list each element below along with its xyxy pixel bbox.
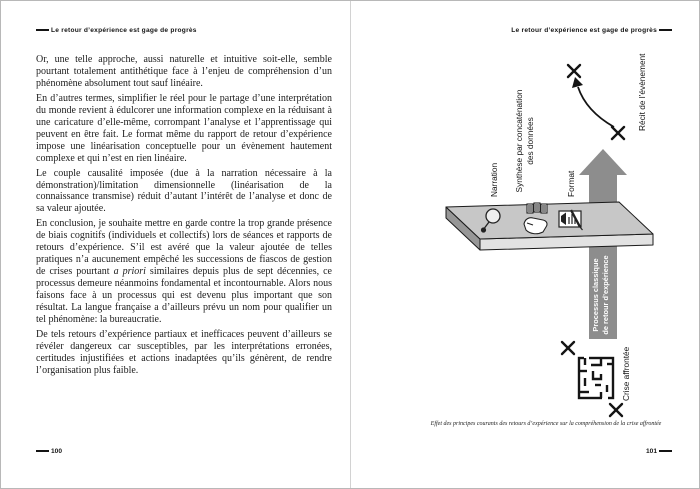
platform bbox=[446, 202, 653, 250]
page-number-right: 101 bbox=[646, 449, 672, 456]
curved-arrow bbox=[572, 77, 614, 127]
label-processus-line1: Processus classique bbox=[591, 258, 600, 331]
body-text-column: Or, une telle approche, aussi naturelle … bbox=[36, 54, 332, 380]
figure-diagram: Récit de l’évènement Processus classique… bbox=[421, 49, 691, 419]
x-mark-crisis-bottom bbox=[610, 404, 622, 416]
platform-top-face bbox=[446, 202, 653, 239]
page-gutter-divider bbox=[350, 1, 351, 489]
paragraph-text: Or, une telle approche, aussi naturelle … bbox=[36, 54, 332, 89]
figure-caption: Effet des principes courants des retours… bbox=[406, 421, 686, 429]
page-number-rule bbox=[659, 450, 672, 451]
header-rule bbox=[659, 29, 672, 30]
label-crise: Crise affrontée bbox=[621, 346, 631, 401]
label-recit: Récit de l’évènement bbox=[637, 53, 647, 131]
paragraph: En conclusion, je souhaite mettre en gar… bbox=[36, 218, 332, 326]
x-mark-story-end bbox=[568, 65, 580, 77]
document-chart-icon bbox=[559, 210, 583, 230]
running-title-text: Le retour d’expérience est gage de progr… bbox=[511, 27, 657, 34]
page-number-text: 101 bbox=[646, 448, 657, 455]
x-mark-crisis-left bbox=[562, 342, 574, 354]
paragraph-text: De tels retours d’expérience partiaux et… bbox=[36, 329, 332, 376]
x-mark-story-start bbox=[612, 127, 624, 139]
running-title-text: Le retour d’expérience est gage de progr… bbox=[51, 27, 197, 34]
paragraph-text: Le couple causalité imposée (due à la na… bbox=[36, 168, 332, 215]
header-rule bbox=[36, 29, 49, 30]
paragraph: Le couple causalité imposée (due à la na… bbox=[36, 168, 332, 216]
paragraph-italic-text: a priori bbox=[114, 266, 146, 277]
running-title-left: Le retour d’expérience est gage de progr… bbox=[36, 28, 197, 35]
label-format: Format bbox=[566, 170, 576, 197]
maze-icon bbox=[579, 357, 613, 400]
page-number-text: 100 bbox=[51, 448, 62, 455]
label-synthese-line1: Synthèse par concaténation bbox=[514, 89, 524, 192]
running-title-right: Le retour d’expérience est gage de progr… bbox=[511, 28, 672, 35]
page-number-rule bbox=[36, 450, 49, 451]
book-spread: Le retour d’expérience est gage de progr… bbox=[0, 0, 700, 489]
paragraph: En d’autres termes, simplifier le réel p… bbox=[36, 93, 332, 165]
label-processus-line2: de retour d’expérience bbox=[601, 255, 610, 334]
page-number-left: 100 bbox=[36, 449, 62, 456]
label-narration: Narration bbox=[489, 162, 499, 197]
paragraph-text: En d’autres termes, simplifier le réel p… bbox=[36, 93, 332, 164]
label-synthese-line2: des données bbox=[525, 117, 535, 165]
paragraph: De tels retours d’expérience partiaux et… bbox=[36, 329, 332, 377]
paragraph: Or, une telle approche, aussi naturelle … bbox=[36, 54, 332, 90]
